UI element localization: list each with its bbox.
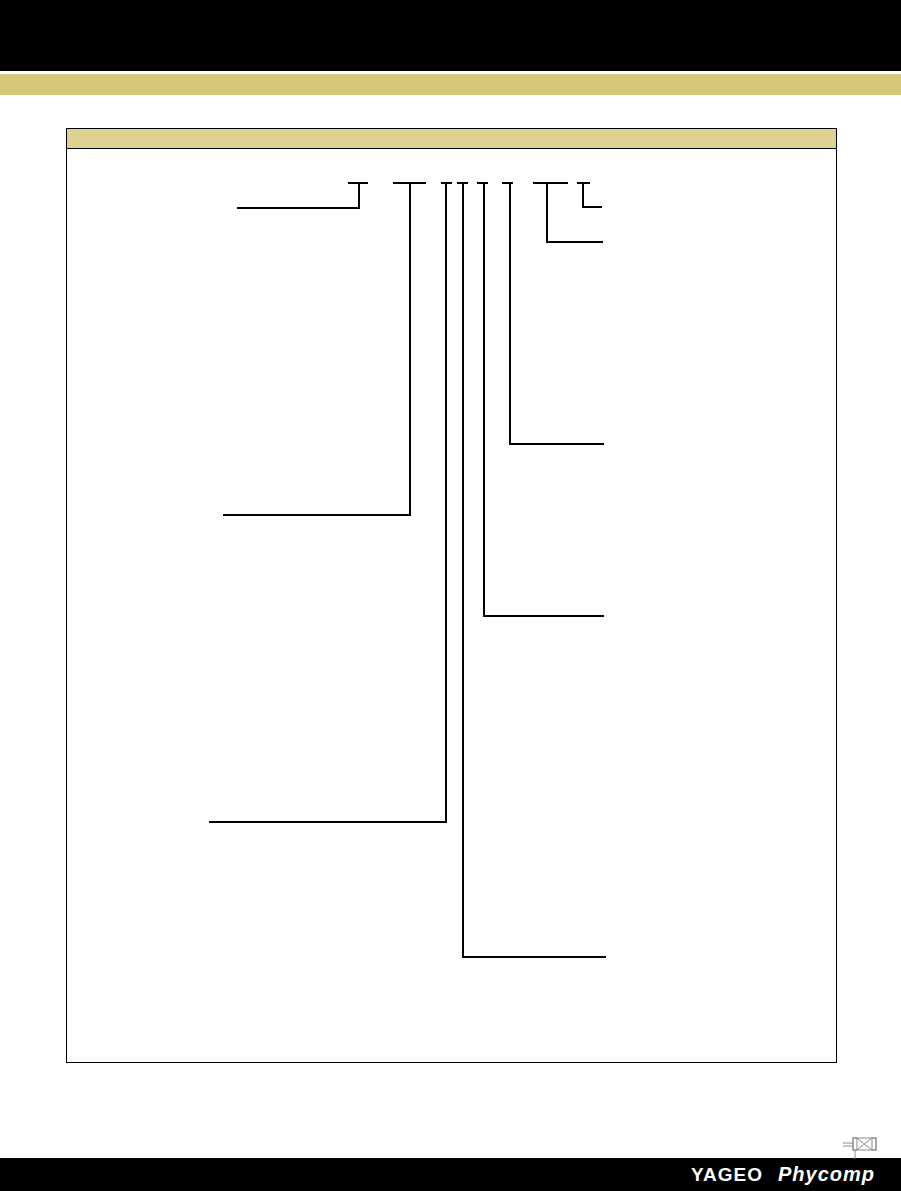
brand-logo: YAGEO Phycomp: [691, 1158, 875, 1191]
resistor-component-icon: [842, 1134, 880, 1160]
datasheet-page: { "page": { "background": "#ffffff", "he…: [0, 0, 901, 1191]
header-bar: [0, 0, 901, 71]
brand-phycomp: Phycomp: [778, 1163, 875, 1186]
brand-yageo: YAGEO: [691, 1164, 763, 1186]
accent-band: [0, 74, 901, 95]
ordering-code-panel: [66, 128, 837, 1063]
panel-titlebar: [67, 129, 836, 149]
